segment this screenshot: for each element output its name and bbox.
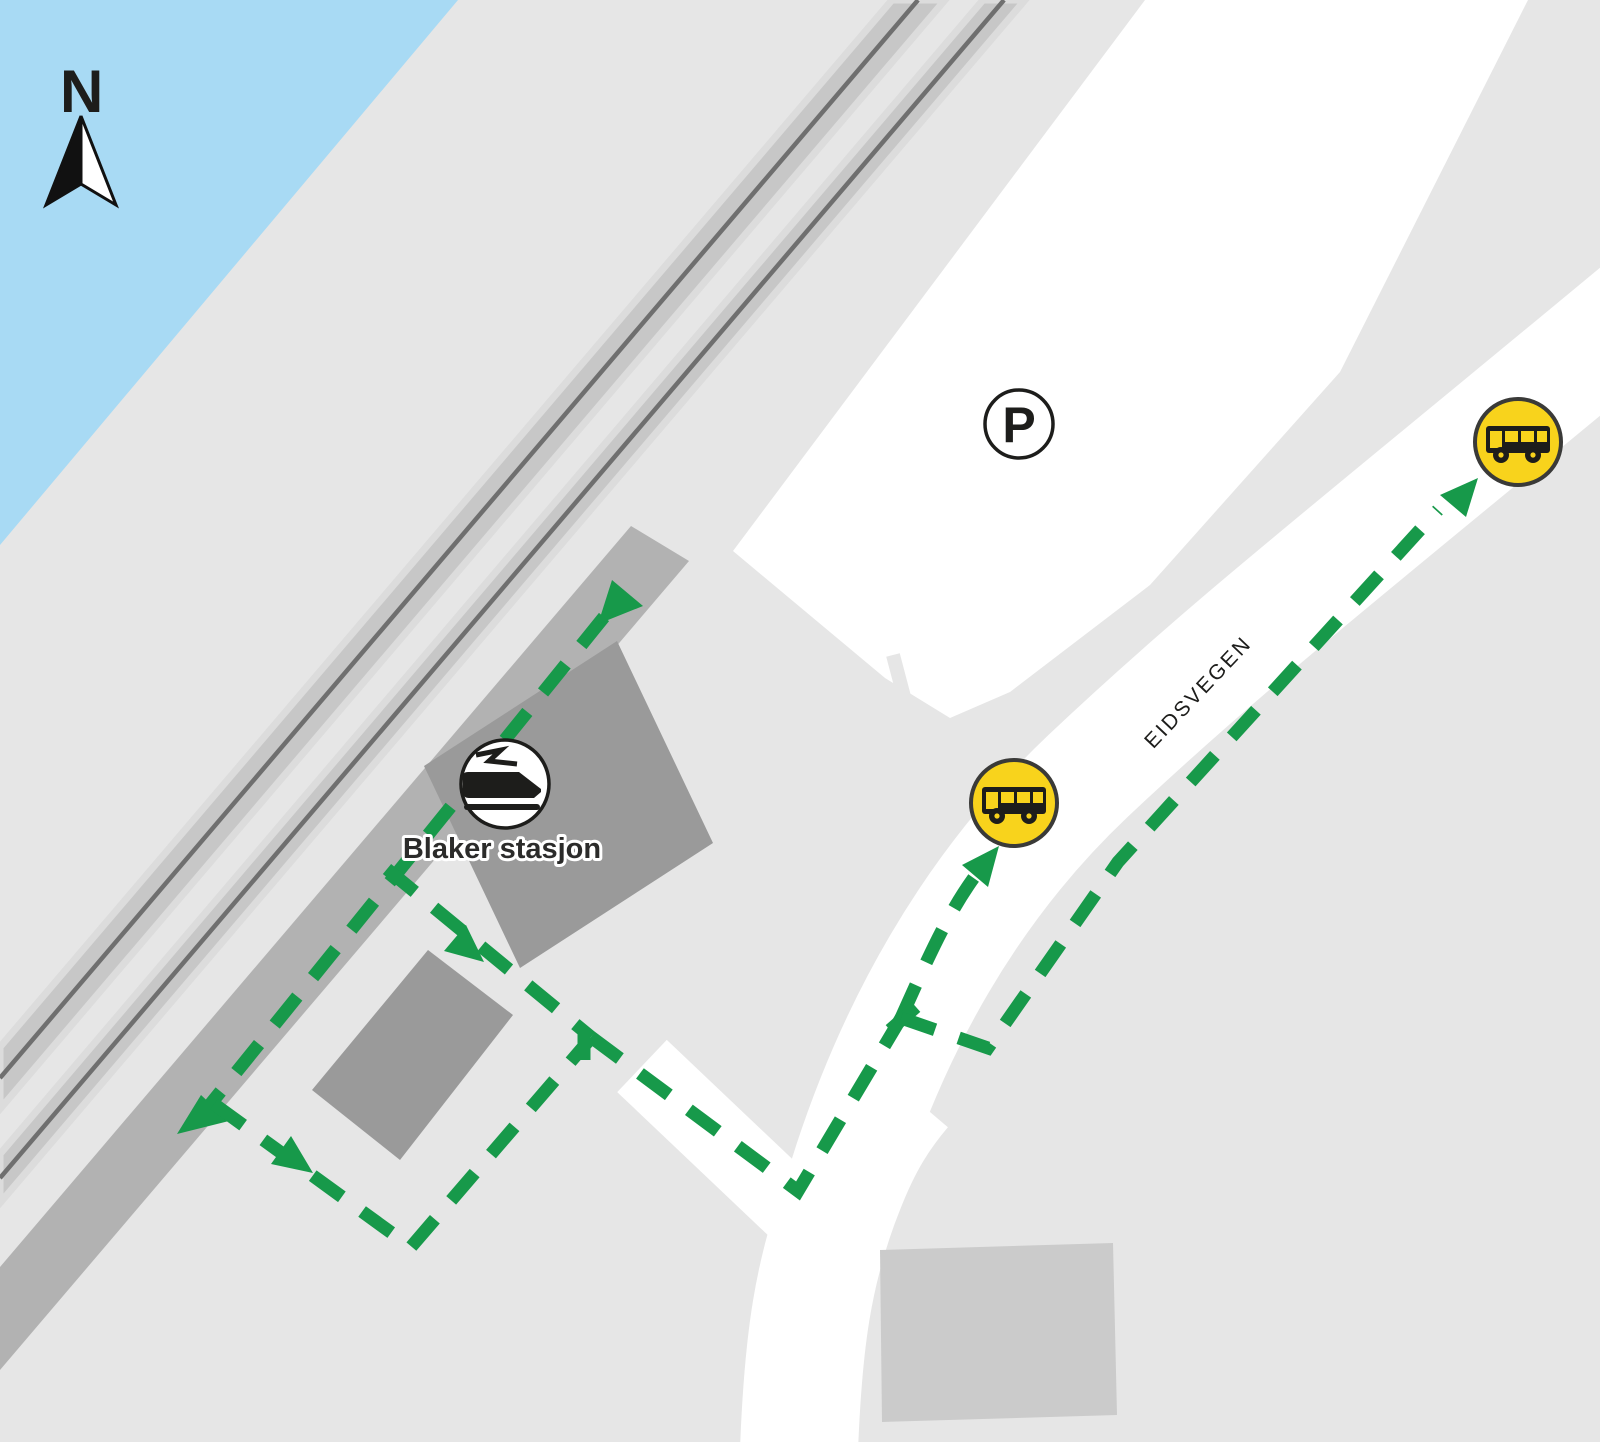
parking-label: P bbox=[1002, 397, 1035, 453]
north-label: N bbox=[60, 58, 103, 125]
bus-stop-marker-west bbox=[971, 760, 1057, 846]
building-southeast bbox=[880, 1243, 1117, 1422]
station-label: Blaker stasjon bbox=[403, 833, 601, 865]
bus-stop-marker-northeast bbox=[1475, 399, 1561, 485]
parking-marker: P bbox=[985, 390, 1053, 458]
station-area-map: P Blaker stasjon EIDSVEGEN N bbox=[0, 0, 1600, 1442]
map-canvas: P Blaker stasjon EIDSVEGEN N bbox=[0, 0, 1600, 1442]
